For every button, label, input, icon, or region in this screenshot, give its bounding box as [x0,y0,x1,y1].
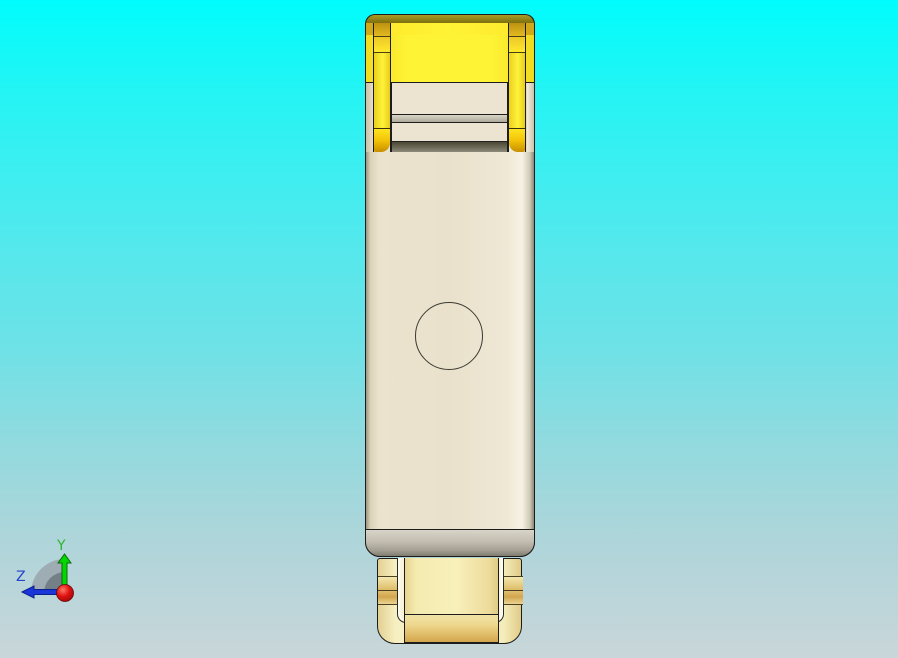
shield-segment [378,591,397,605]
window-groove [392,114,507,123]
body-sidewall-left [366,83,373,152]
cad-viewport[interactable]: Y Z [0,0,898,658]
clip-bar-left[interactable] [373,23,391,152]
shield-segment [378,576,397,591]
clip-bar-foot [374,129,390,152]
shield-segments-right [504,576,523,623]
clip-bar-segment [374,53,390,129]
clip-bar-foot [509,129,525,152]
clip-bar-segment [374,37,390,53]
clip-bar-right[interactable] [508,23,526,152]
clip-bar-segment [509,53,525,129]
clip-bar-segment [509,37,525,53]
y-axis-label: Y [56,538,66,554]
window-shadow-band [392,141,507,152]
connector-tongue[interactable] [404,558,499,643]
shield-segments-left [378,576,397,623]
thumb-circle-detail[interactable] [415,302,483,370]
shield-segment [504,591,523,605]
shield-segment [504,576,523,591]
clip-bar-segment [374,23,390,37]
orientation-triad[interactable]: Y Z [8,523,100,609]
origin-sphere[interactable] [57,585,74,602]
body-bottom-band[interactable] [365,529,535,557]
cap-window-panel[interactable] [391,83,508,152]
connector-tongue-tip [404,614,499,643]
body-sidewall-right [527,83,534,152]
z-axis-label: Z [16,569,26,585]
clip-bar-segment [509,23,525,37]
